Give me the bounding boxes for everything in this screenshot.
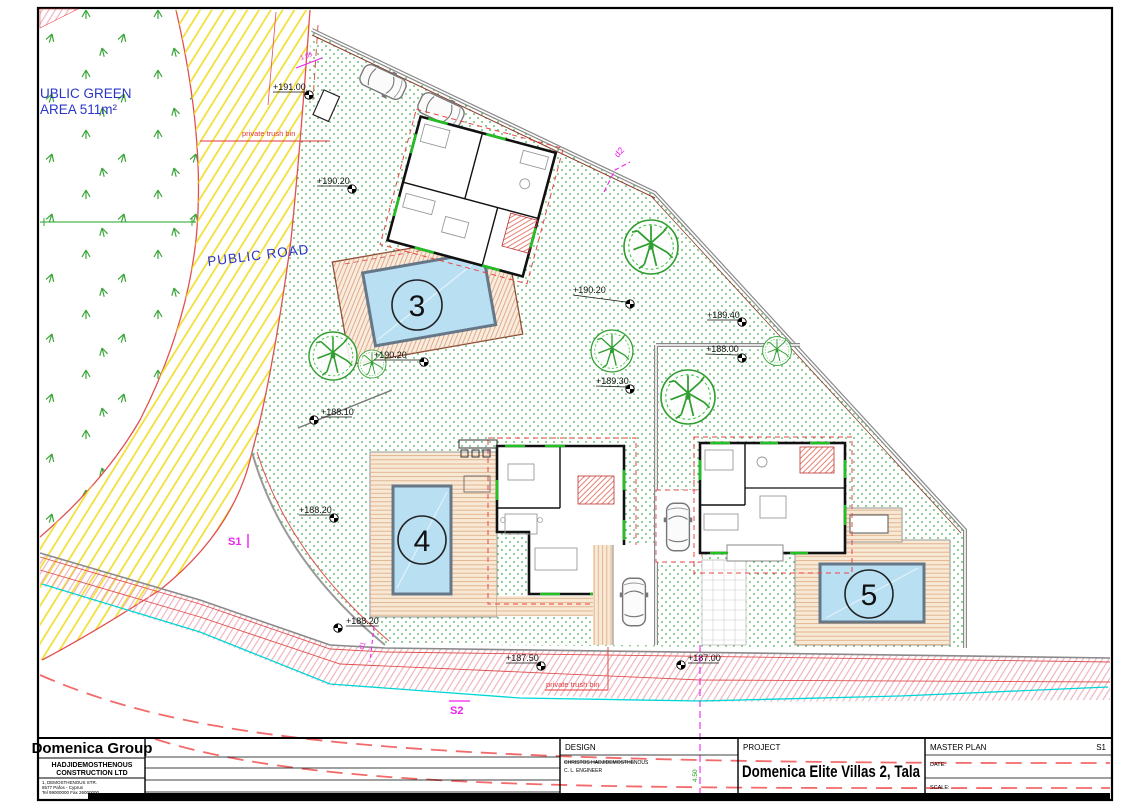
trash-bin-label-top: private trush bin <box>242 129 295 138</box>
elevation-label: +189.40 <box>707 310 740 320</box>
villa-4-number: 4 <box>414 525 431 558</box>
elevation-label: +190.20 <box>573 285 606 295</box>
design-label: DESIGN <box>565 743 596 752</box>
date-label: DATE: <box>930 762 946 768</box>
villa-5-number: 5 <box>861 579 878 612</box>
elevation-label: +190.20 <box>374 350 407 360</box>
green-area-label-line2: AREA 511m² <box>40 102 118 117</box>
elevation-label: +188.20 <box>346 616 379 626</box>
elevation-label: +188.10 <box>321 407 354 417</box>
trash-bin-label-bottom: private trush bin <box>546 680 599 689</box>
design-name-struck: CHRISTOS HADJIDEMOSTHENOUS <box>564 760 649 766</box>
company-line2: CONSTRUCTION LTD <box>56 770 127 777</box>
villa-3-number: 3 <box>409 290 426 323</box>
tree-icon <box>591 330 633 372</box>
project-label: PROJECT <box>743 743 780 752</box>
design-name-2: C. L. ENGINEER <box>564 768 602 774</box>
elevation-label: +187.50 <box>506 653 539 663</box>
sheet-number: S1 <box>1096 743 1106 752</box>
project-name: Domenica Elite Villas 2, Tala <box>742 762 920 781</box>
elevation-label: +188.00 <box>706 344 739 354</box>
site-plan-drawing: 3 4 5 +191.00 +190.20 +190.20 +189.40 +1… <box>0 0 1142 808</box>
title-block: Domenica Group HADJIDEMOSTHENOUS CONSTRU… <box>32 738 1112 800</box>
company-name: Domenica Group <box>32 740 153 757</box>
tree-icon <box>309 332 357 380</box>
master-plan-sheet: { "plan": { "green_area_line1": "UBLIC G… <box>0 0 1142 808</box>
section-s2-label: S2 <box>450 705 463 717</box>
scale-label: SCALE: <box>930 785 950 791</box>
company-line1: HADJIDEMOSTHENOUS <box>52 762 133 769</box>
green-area-label-line1: UBLIC GREEN <box>40 86 132 101</box>
car-icon <box>620 578 649 626</box>
section-s1-label: S1 <box>228 536 241 548</box>
tree-icon <box>661 370 715 424</box>
tree-icon <box>624 220 678 274</box>
tree-icon <box>763 337 792 366</box>
outdoor-dining-table <box>850 515 888 533</box>
car-icon <box>664 503 693 551</box>
elevation-label: +190.20 <box>317 176 350 186</box>
sheet-title: MASTER PLAN <box>930 743 987 752</box>
title-block-bottom-bar <box>88 793 1110 799</box>
elevation-label: +189.30 <box>596 376 629 386</box>
elevation-label: +191.00 <box>273 82 306 92</box>
entry-porch <box>727 545 783 561</box>
elevation-label: +187.00 <box>688 653 721 663</box>
central-driveway <box>593 545 654 645</box>
elevation-label: +188.20 <box>299 505 332 515</box>
